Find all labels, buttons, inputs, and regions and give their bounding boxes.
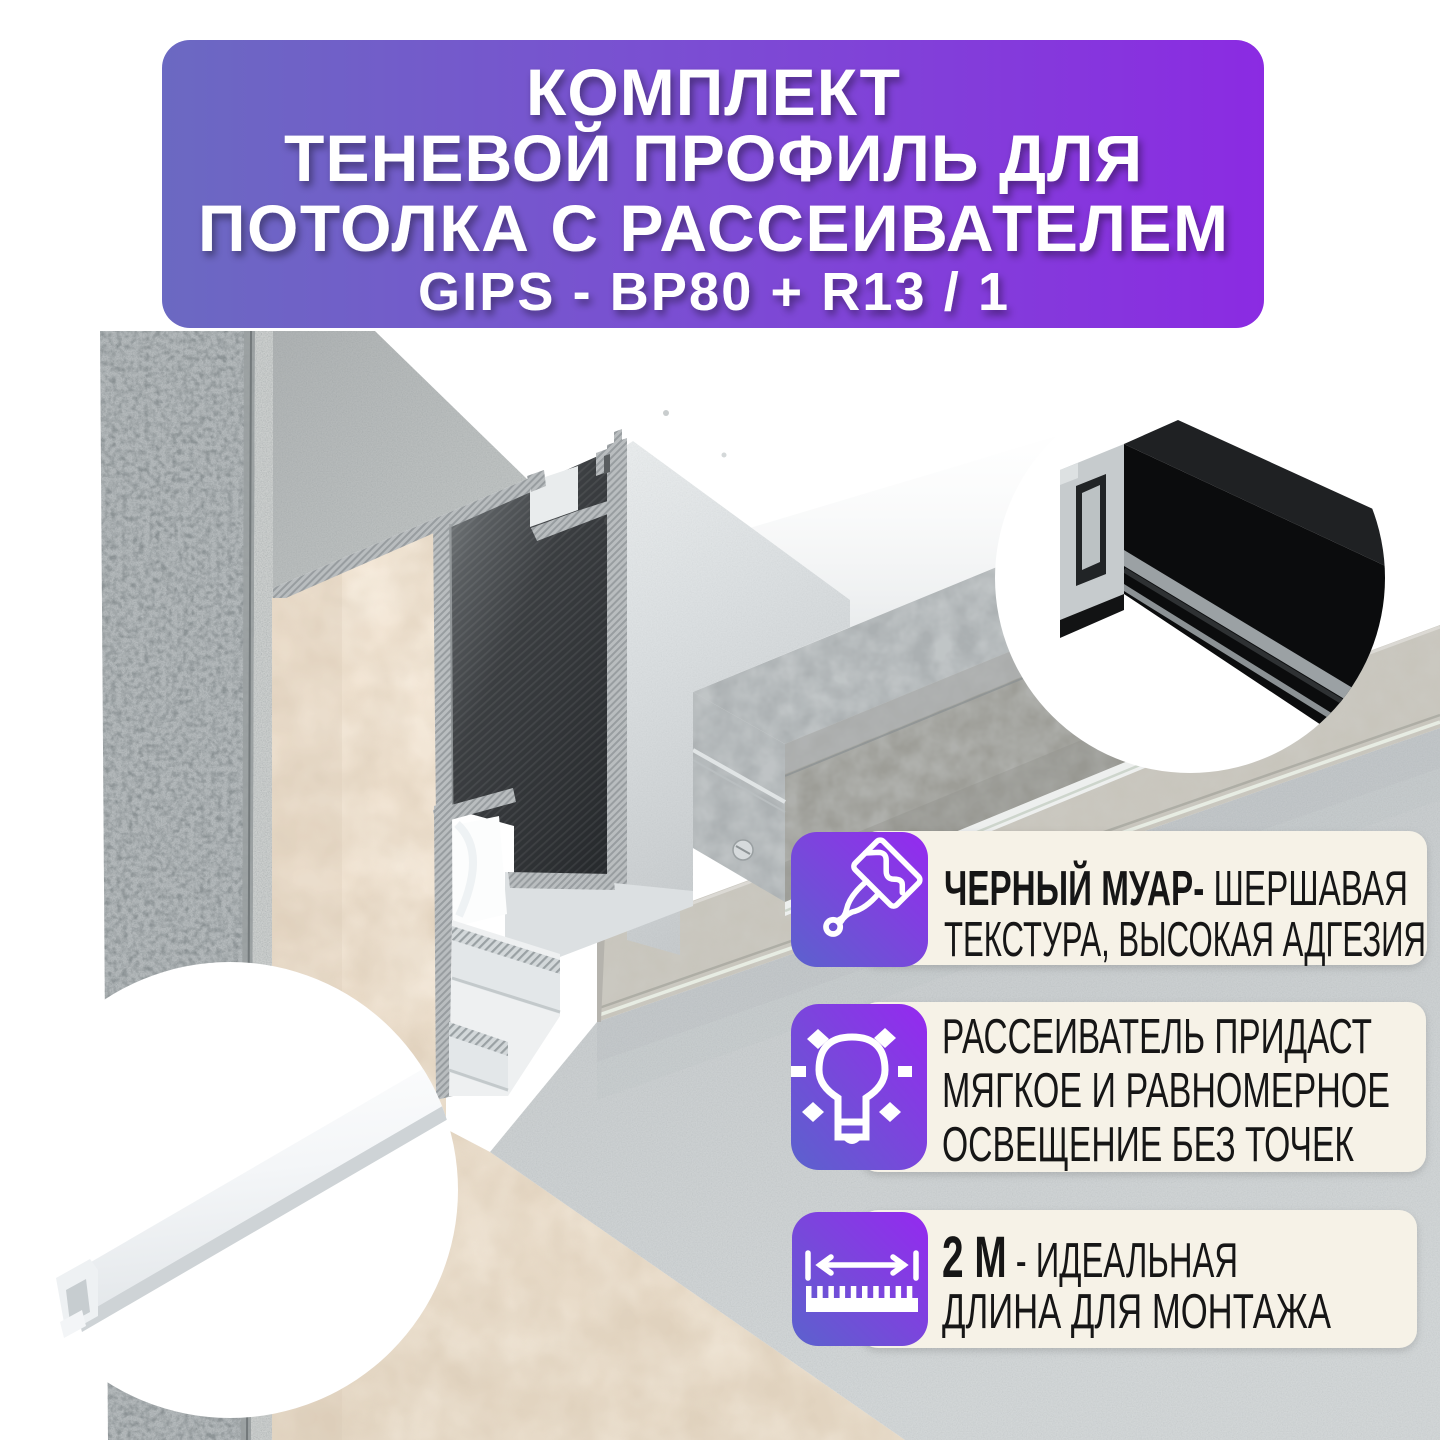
svg-text:ПОТОЛКА С РАССЕИВАТЕЛЕМ: ПОТОЛКА С РАССЕИВАТЕЛЕМ [198, 191, 1228, 265]
svg-text:ЧЕРНЫЙ МУАР- ШЕРШАВАЯ: ЧЕРНЫЙ МУАР- ШЕРШАВАЯ [944, 861, 1408, 916]
svg-text:GIPS - BP80 + R13 / 1: GIPS - BP80 + R13 / 1 [418, 262, 1008, 322]
svg-text:МЯГКОЕ И РАВНОМЕРНОЕ: МЯГКОЕ И РАВНОМЕРНОЕ [942, 1064, 1390, 1118]
svg-text:2 М - ИДЕАЛЬНАЯ: 2 М - ИДЕАЛЬНАЯ [942, 1225, 1238, 1290]
svg-text:ТЕКСТУРА, ВЫСОКАЯ АДГЕЗИЯ: ТЕКСТУРА, ВЫСОКАЯ АДГЕЗИЯ [944, 913, 1426, 967]
svg-text:КОМПЛЕКТ: КОМПЛЕКТ [526, 55, 900, 129]
svg-text:ТЕНЕВОЙ ПРОФИЛЬ ДЛЯ: ТЕНЕВОЙ ПРОФИЛЬ ДЛЯ [284, 120, 1142, 195]
svg-text:ДЛИНА ДЛЯ МОНТАЖА: ДЛИНА ДЛЯ МОНТАЖА [942, 1285, 1331, 1339]
svg-text:РАССЕИВАТЕЛЬ ПРИДАСТ: РАССЕИВАТЕЛЬ ПРИДАСТ [942, 1010, 1372, 1064]
svg-text:ОСВЕЩЕНИЕ БЕЗ ТОЧЕК: ОСВЕЩЕНИЕ БЕЗ ТОЧЕК [942, 1118, 1354, 1172]
